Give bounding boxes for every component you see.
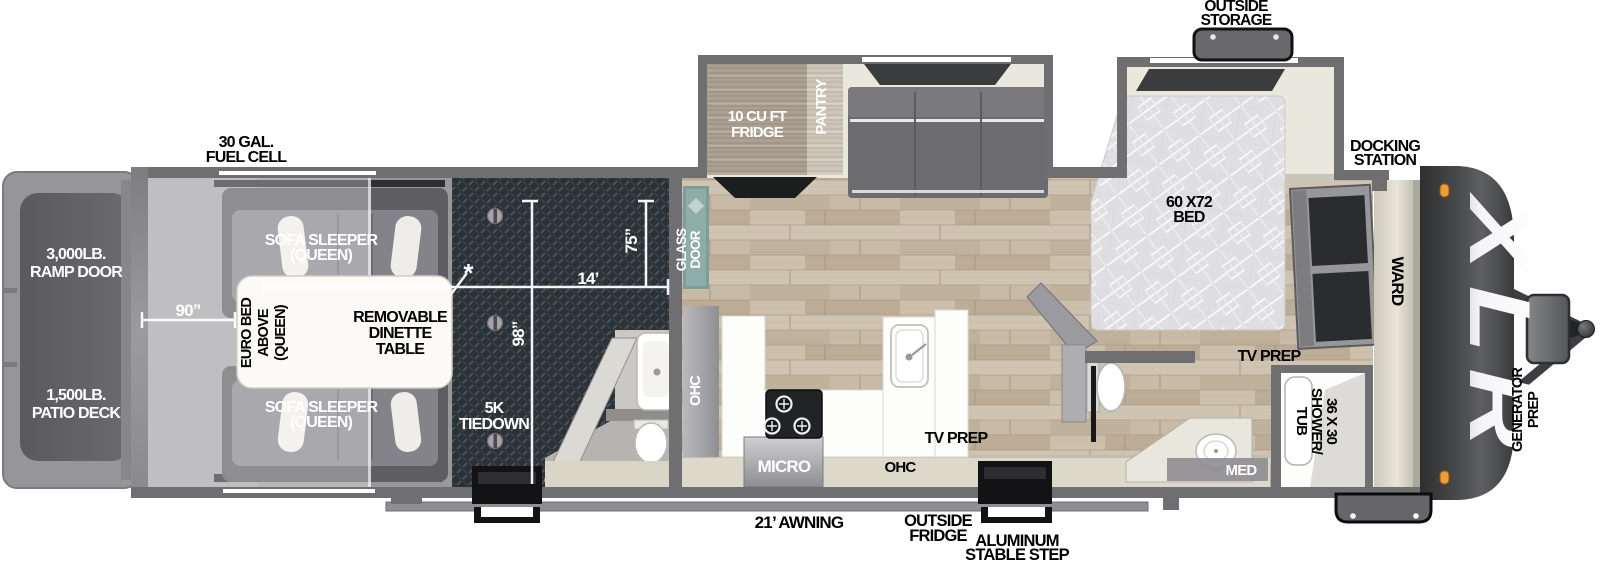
svg-text:75”: 75”	[622, 228, 641, 253]
svg-text:FRIDGE: FRIDGE	[731, 124, 784, 141]
svg-text:1,500LB.: 1,500LB.	[46, 387, 106, 404]
svg-text:STABLE STEP: STABLE STEP	[965, 546, 1069, 561]
svg-text:FUEL CELL: FUEL CELL	[206, 149, 288, 166]
svg-text:ABOVE: ABOVE	[256, 308, 272, 357]
svg-text:STATION: STATION	[1354, 152, 1416, 169]
svg-text:10 CU FT: 10 CU FT	[728, 108, 787, 125]
svg-text:STORAGE: STORAGE	[1201, 12, 1272, 29]
svg-text:21’ AWNING: 21’ AWNING	[755, 513, 844, 532]
svg-text:MED: MED	[1226, 462, 1258, 479]
svg-text:(QUEEN): (QUEEN)	[290, 247, 352, 264]
svg-text:TUB: TUB	[1293, 407, 1310, 436]
svg-text:GENERATOR: GENERATOR	[1510, 367, 1526, 452]
svg-text:WARD: WARD	[1388, 257, 1407, 306]
svg-text:BED: BED	[1173, 209, 1205, 226]
svg-text:MICRO: MICRO	[758, 457, 811, 476]
svg-text:GLASS: GLASS	[674, 228, 689, 271]
svg-text:DOOR: DOOR	[688, 230, 703, 268]
svg-text:DINETTE: DINETTE	[369, 325, 433, 342]
svg-text:TABLE: TABLE	[376, 341, 425, 358]
svg-text:OHC: OHC	[885, 459, 917, 476]
svg-text:REMOVABLE: REMOVABLE	[353, 309, 448, 326]
svg-text:(QUEEN): (QUEEN)	[273, 304, 289, 361]
svg-text:98”: 98”	[509, 321, 528, 346]
svg-text:FRIDGE: FRIDGE	[909, 527, 967, 545]
svg-text:(QUEEN): (QUEEN)	[290, 414, 352, 431]
svg-text:3,000LB.: 3,000LB.	[46, 246, 106, 263]
svg-text:PATIO DECK: PATIO DECK	[32, 405, 122, 422]
svg-text:TIEDOWN: TIEDOWN	[459, 416, 529, 433]
svg-text:14’: 14’	[577, 269, 598, 288]
svg-text:TV PREP: TV PREP	[925, 430, 989, 447]
svg-text:PANTRY: PANTRY	[813, 79, 830, 135]
svg-text:90”: 90”	[175, 301, 200, 320]
svg-text:PREP: PREP	[1526, 391, 1542, 428]
svg-text:5K: 5K	[485, 400, 505, 417]
svg-text:RAMP DOOR: RAMP DOOR	[30, 264, 123, 281]
svg-text:TV PREP: TV PREP	[1238, 348, 1302, 365]
svg-text:OHC: OHC	[688, 375, 704, 406]
svg-text:EURO BED: EURO BED	[239, 298, 255, 368]
